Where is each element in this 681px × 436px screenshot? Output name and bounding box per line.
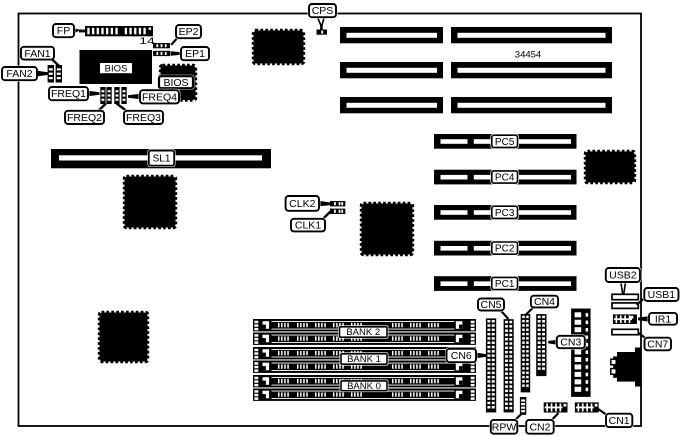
- svg-text:CN5: CN5: [480, 299, 501, 311]
- svg-text:CLK1: CLK1: [295, 220, 321, 232]
- svg-text:FREQ3: FREQ3: [126, 112, 161, 124]
- svg-text:FREQ4: FREQ4: [142, 91, 177, 103]
- svg-text:FREQ1: FREQ1: [51, 88, 86, 100]
- svg-text:BANK 0: BANK 0: [347, 381, 381, 392]
- svg-text:FP: FP: [57, 25, 70, 37]
- svg-text:EP2: EP2: [179, 26, 199, 38]
- svg-text:FAN2: FAN2: [6, 68, 32, 80]
- svg-text:SL1: SL1: [153, 154, 171, 165]
- svg-text:CN4: CN4: [534, 296, 555, 308]
- svg-text:CN3: CN3: [560, 337, 581, 349]
- svg-text:PC5: PC5: [495, 137, 515, 148]
- svg-text:FAN1: FAN1: [24, 48, 50, 60]
- svg-text:BIOS: BIOS: [105, 63, 128, 74]
- svg-text:CLK2: CLK2: [289, 198, 315, 210]
- svg-text:CPS: CPS: [312, 5, 334, 17]
- svg-text:PC2: PC2: [495, 244, 515, 255]
- svg-text:PC4: PC4: [495, 173, 515, 184]
- svg-text:USB2: USB2: [609, 270, 637, 282]
- svg-text:34454: 34454: [515, 49, 541, 60]
- svg-text:PC3: PC3: [495, 208, 515, 219]
- svg-text:CN7: CN7: [647, 339, 668, 351]
- svg-text:BANK 2: BANK 2: [346, 327, 380, 338]
- svg-text:PC1: PC1: [495, 279, 515, 290]
- svg-text:FREQ2: FREQ2: [67, 112, 102, 124]
- svg-text:CN1: CN1: [609, 415, 630, 427]
- svg-text:BANK 1: BANK 1: [347, 354, 381, 365]
- svg-text:CN6: CN6: [451, 350, 472, 362]
- svg-text:IR1: IR1: [655, 313, 672, 325]
- svg-text:USB1: USB1: [648, 289, 676, 301]
- svg-text:BIOS: BIOS: [163, 77, 188, 89]
- svg-text:14: 14: [139, 36, 155, 47]
- svg-text:RPW: RPW: [492, 421, 517, 433]
- svg-text:EP1: EP1: [185, 48, 205, 60]
- svg-text:CN2: CN2: [529, 421, 550, 433]
